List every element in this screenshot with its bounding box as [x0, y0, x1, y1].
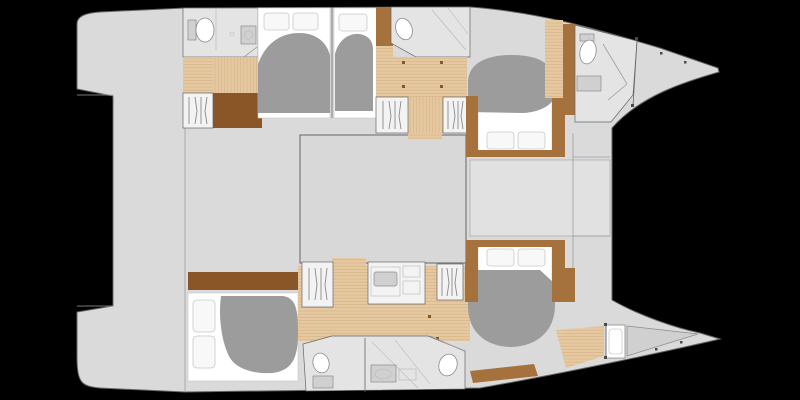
- port-forward-wardrobe: [563, 24, 575, 115]
- bed-frame-left: [466, 240, 478, 302]
- duvet: [468, 55, 555, 113]
- duvet: [468, 270, 555, 347]
- pillow: [518, 132, 545, 149]
- port-aft-cabin-floor: [183, 57, 213, 93]
- hanging-locker: [183, 93, 213, 128]
- bed-frame-head: [466, 240, 565, 247]
- stbd-vanity-unit: [368, 262, 425, 304]
- pillow: [264, 13, 289, 30]
- port-aft-head: [183, 8, 258, 57]
- pillow: [193, 300, 215, 332]
- bulkhead-marker: [604, 323, 607, 326]
- bed-frame-foot: [466, 150, 565, 157]
- toilet-icon: [196, 18, 214, 42]
- stbd-heads-block: [303, 336, 465, 392]
- deck-fitting: [680, 341, 683, 344]
- port-aft-cabin-floor2: [213, 57, 265, 93]
- pillow: [487, 132, 514, 149]
- door-post: [428, 315, 431, 318]
- stbd-aft-headboard-cabinet: [188, 272, 298, 290]
- door-post: [440, 61, 443, 64]
- stbd-aft-bed: [188, 293, 298, 381]
- deck-fitting: [684, 61, 687, 64]
- port-companionway-stairs-aft: [376, 97, 408, 133]
- pillow: [339, 14, 367, 31]
- bulkhead-marker: [604, 356, 607, 359]
- pillow: [193, 336, 215, 368]
- port-aft-bed: [258, 8, 330, 118]
- port-mid-bed: [334, 8, 378, 118]
- door-post: [440, 85, 443, 88]
- port-mid-wardrobe: [376, 7, 393, 46]
- port-companionway-stairs-fwd: [443, 97, 467, 133]
- door-post: [402, 61, 405, 64]
- saloon-floor: [300, 135, 466, 263]
- toilet-tank: [188, 20, 196, 40]
- washbasin: [313, 376, 333, 388]
- stbd-companionway-stairs-fwd: [437, 264, 463, 300]
- toilet-tank: [580, 34, 594, 41]
- bed-frame-left: [466, 96, 478, 157]
- foredeck-lounge: [470, 160, 610, 236]
- port-corridor-floor3: [408, 97, 443, 133]
- stbd-forward-wardrobe: [563, 268, 575, 302]
- duvet: [335, 34, 373, 111]
- stbd-companionway-stairs-aft: [302, 262, 333, 307]
- bulkhead-marker: [631, 104, 634, 107]
- floor-plan-canvas: [0, 0, 800, 400]
- port-forward-floor: [545, 20, 563, 98]
- deck-fitting: [655, 348, 658, 351]
- pillow: [293, 13, 318, 30]
- crew-sink: [577, 76, 601, 91]
- pillow: [487, 249, 514, 266]
- door-post: [402, 85, 405, 88]
- deck-fitting: [660, 52, 663, 55]
- saloon-door-sill-starboard: [332, 258, 366, 266]
- port-corridor-floor: [376, 46, 393, 97]
- washbasin: [241, 26, 256, 44]
- port-aft-cabinet: [213, 93, 262, 128]
- bulkhead-marker: [635, 37, 638, 40]
- pillow: [518, 249, 545, 266]
- catamaran-floor-plan: [0, 0, 800, 400]
